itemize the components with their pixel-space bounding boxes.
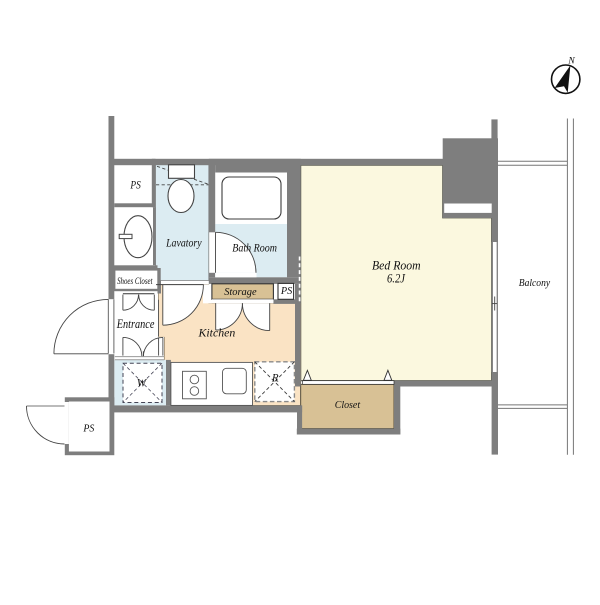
svg-text:Bath Room: Bath Room bbox=[232, 242, 277, 254]
svg-text:Shoes Closet: Shoes Closet bbox=[117, 277, 153, 287]
svg-text:6.2J: 6.2J bbox=[387, 271, 406, 286]
svg-text:Balcony: Balcony bbox=[519, 277, 550, 289]
svg-text:PS: PS bbox=[280, 286, 293, 297]
svg-text:PS: PS bbox=[83, 422, 95, 434]
svg-text:N: N bbox=[567, 57, 575, 67]
svg-text:Storage: Storage bbox=[224, 287, 257, 298]
svg-text:W: W bbox=[137, 375, 147, 389]
svg-text:Lavatory: Lavatory bbox=[165, 236, 202, 250]
svg-text:PS: PS bbox=[130, 179, 141, 191]
svg-text:R: R bbox=[271, 373, 279, 385]
svg-text:Closet: Closet bbox=[335, 400, 361, 411]
svg-text:Entrance: Entrance bbox=[116, 316, 155, 331]
svg-text:Kitchen: Kitchen bbox=[198, 325, 236, 339]
